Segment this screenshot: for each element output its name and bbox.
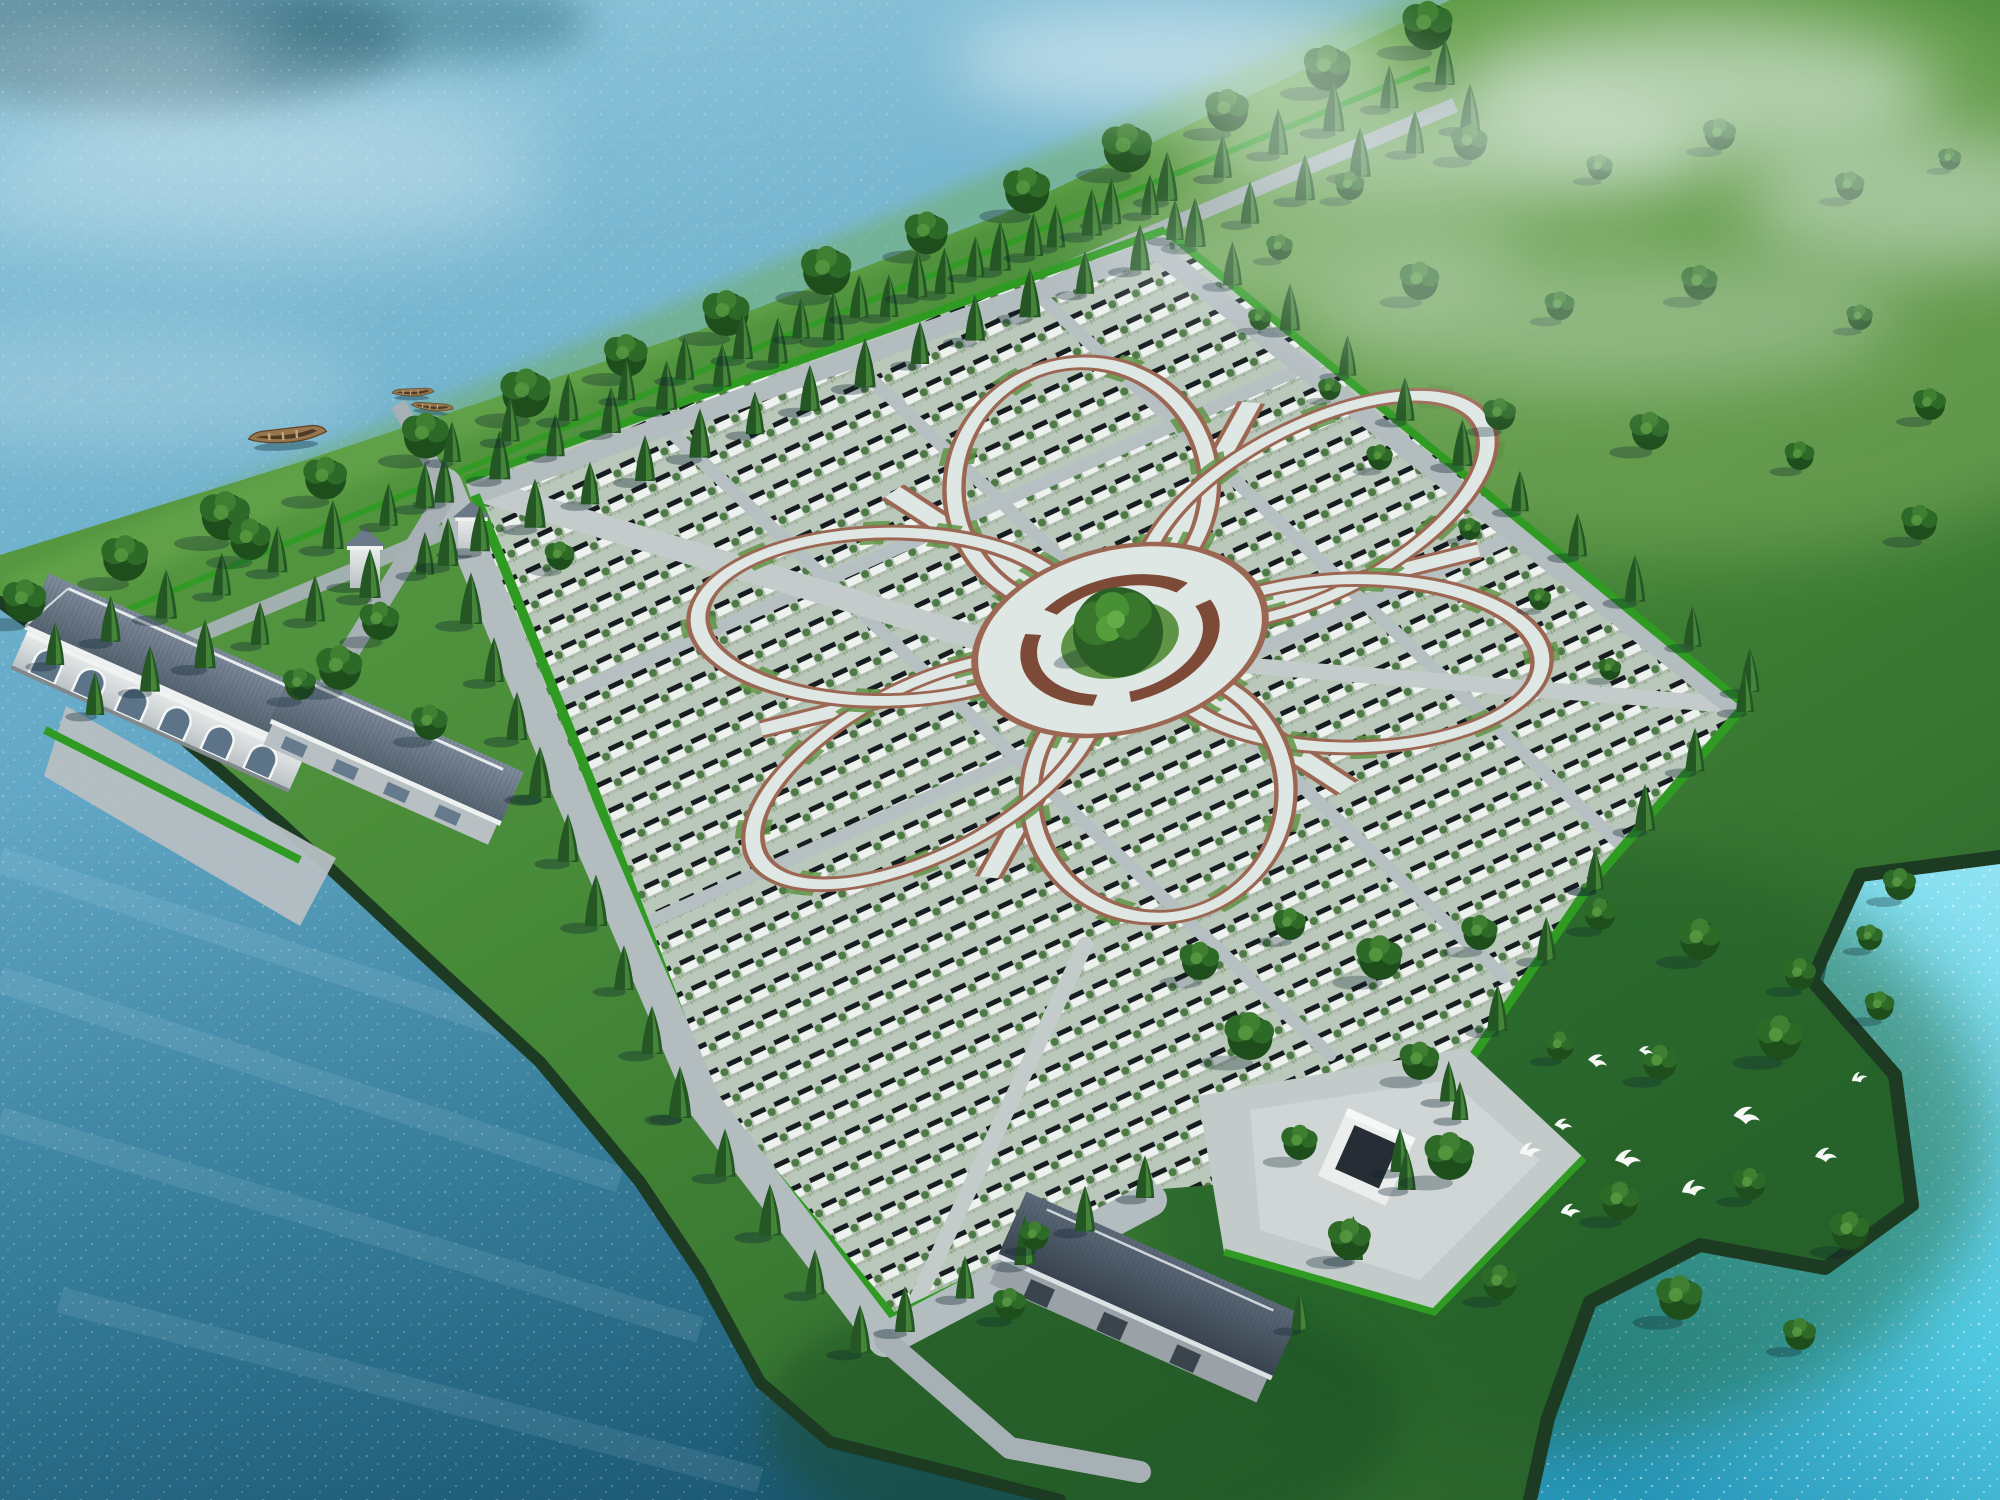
aerial-rendering [0, 0, 2000, 1500]
boat [392, 388, 434, 400]
